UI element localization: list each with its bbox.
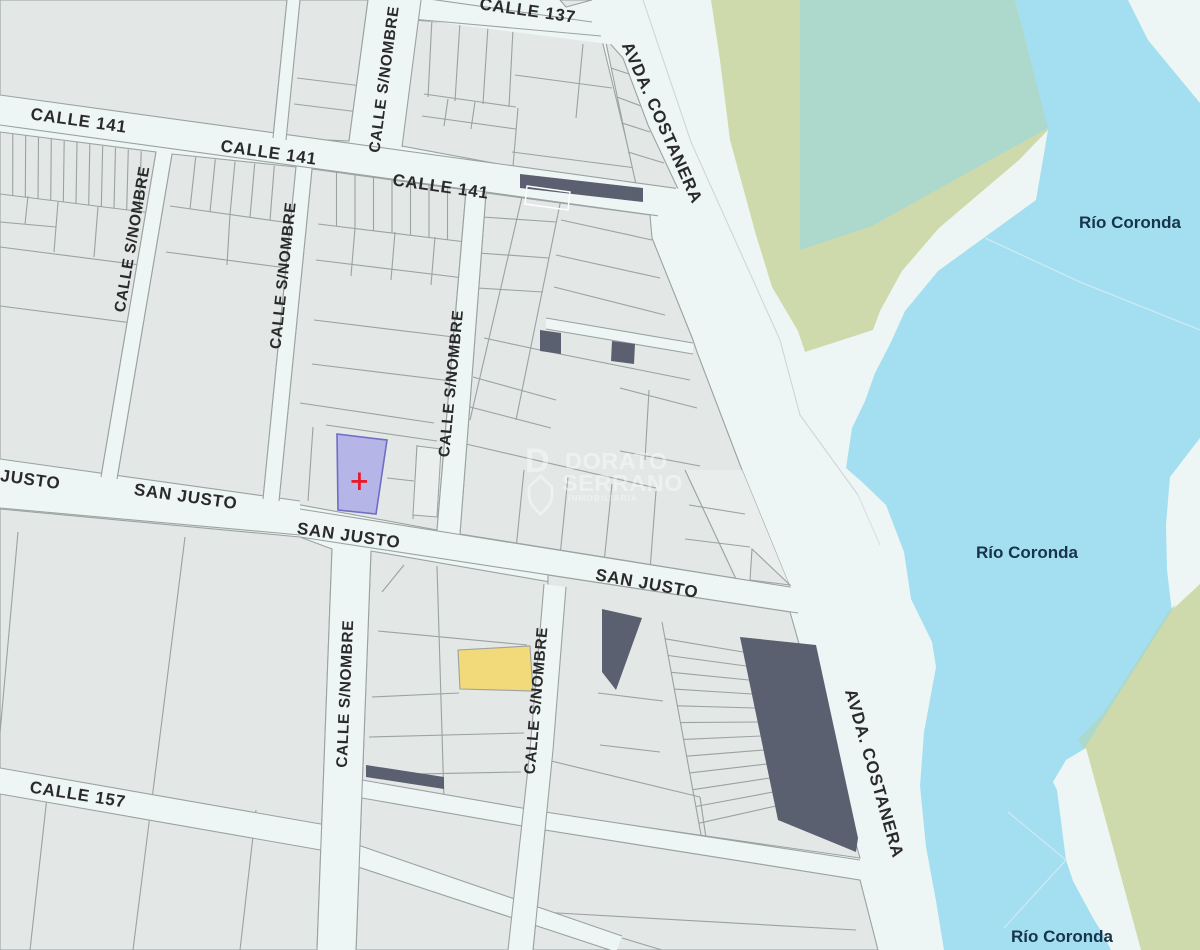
svg-text:Río Coronda: Río Coronda [1079,213,1182,232]
svg-text:D: D [525,442,550,480]
svg-text:Río Coronda: Río Coronda [976,543,1079,562]
svg-text:Río Coronda: Río Coronda [1011,927,1114,946]
svg-text:INMOBILIARIA: INMOBILIARIA [568,493,638,503]
